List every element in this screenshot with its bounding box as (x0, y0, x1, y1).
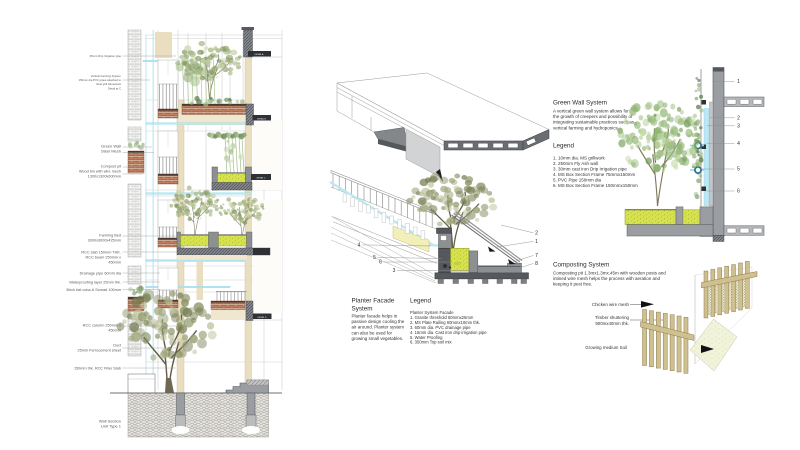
svg-text:45mm Drip Irrigation pipe: 45mm Drip Irrigation pipe (90, 54, 122, 58)
svg-text:7: 7 (535, 253, 538, 259)
svg-text:3. 30mm cast iron Drip Irrigat: 3. 30mm cast iron Drip Irrigation pipe (553, 166, 627, 171)
svg-text:DETAIL A: DETAIL A (255, 53, 265, 56)
svg-text:Waterproofing layer 25mm thk.: Waterproofing layer 25mm thk. (69, 280, 121, 284)
svg-text:Duct: Duct (113, 343, 122, 347)
svg-text:Composting System: Composting System (553, 262, 609, 269)
svg-text:Compost pit: Compost pit (101, 164, 122, 168)
svg-text:Green Wall System: Green Wall System (553, 100, 607, 107)
svg-text:Legend: Legend (410, 298, 432, 305)
svg-text:2: 2 (535, 231, 538, 237)
svg-text:Planter Facade: Planter Facade (352, 298, 395, 305)
svg-text:2. 250mm Fly Ash wall: 2. 250mm Fly Ash wall (553, 161, 598, 166)
svg-text:DETAIL D: DETAIL D (258, 316, 267, 319)
svg-text:the growth of creepers and pos: the growth of creepers and possibility o… (553, 114, 633, 119)
svg-text:Farming Bed: Farming Bed (99, 233, 121, 237)
svg-text:RCC slab 150mm THK.: RCC slab 150mm THK. (81, 250, 121, 254)
svg-text:3: 3 (737, 124, 740, 130)
svg-text:6: 6 (737, 189, 740, 195)
svg-text:Wall Section: Wall Section (99, 418, 121, 423)
svg-text:Growing medium Soil: Growing medium Soil (585, 345, 627, 350)
svg-text:2: 2 (737, 116, 740, 122)
svg-text:450mm: 450mm (108, 261, 121, 265)
svg-text:5: 5 (373, 255, 376, 261)
svg-text:1: 1 (535, 239, 538, 245)
svg-text:A vertical green wall system a: A vertical green wall system allows for (553, 109, 629, 114)
svg-text:keeping it pest free.: keeping it pest free. (553, 282, 592, 287)
svg-text:RCC beam 250mm x: RCC beam 250mm x (86, 255, 122, 259)
svg-text:Legend: Legend (553, 143, 575, 150)
svg-text:Detail at C: Detail at C (108, 86, 121, 90)
svg-text:integrating sustainable practi: integrating sustainable practices such a… (553, 120, 635, 125)
svg-text:can also be used for: can also be used for (352, 330, 393, 335)
svg-text:growing small vegetables.: growing small vegetables. (352, 336, 404, 341)
svg-text:Chicken wire mesh: Chicken wire mesh (592, 302, 630, 307)
svg-text:air around. Planter system: air around. Planter system (352, 325, 405, 330)
svg-text:6: 6 (379, 260, 382, 266)
svg-text:Brick bat coba & Scread 100mm: Brick bat coba & Scread 100mm (67, 288, 121, 292)
svg-text:6. MS Box Section Frame 150mmx: 6. MS Box Section Frame 150mmx150mm (553, 183, 638, 188)
svg-text:6. 350mm Top soil mix: 6. 350mm Top soil mix (410, 340, 452, 345)
svg-text:5: 5 (737, 167, 740, 173)
svg-text:Timber shuttering: Timber shuttering (595, 315, 630, 320)
svg-text:1300x1300x600mm: 1300x1300x600mm (88, 175, 121, 179)
svg-text:System: System (352, 306, 373, 313)
svg-text:DETAIL B: DETAIL B (257, 117, 266, 120)
svg-text:1: 1 (737, 79, 740, 85)
svg-text:vertical farming and hydroponi: vertical farming and hydroponics. (553, 125, 619, 130)
svg-text:1. 10mm dia. MS grillwork: 1. 10mm dia. MS grillwork (553, 156, 606, 161)
svg-text:Planter facade helps in: Planter facade helps in (352, 314, 398, 319)
svg-text:3: 3 (393, 268, 396, 274)
svg-text:Steel Mesh: Steel Mesh (101, 149, 121, 154)
svg-text:900mx40mm thk.: 900mx40mm thk. (595, 321, 629, 326)
svg-text:passive design cooling the: passive design cooling the (352, 319, 405, 324)
svg-text:Wood bin with wire mesh: Wood bin with wire mesh (79, 169, 121, 173)
svg-text:3000x3000x425mm: 3000x3000x425mm (88, 238, 121, 242)
svg-text:Green Wall: Green Wall (101, 143, 121, 148)
svg-text:8: 8 (535, 261, 538, 267)
svg-text:Unit Type 1: Unit Type 1 (101, 424, 122, 429)
svg-text:intined wire mesh helps the pr: intined wire mesh helps the process with… (553, 276, 661, 281)
svg-text:Composting pit 1.3mx1.3mx.45m: Composting pit 1.3mx1.3mx.45m with woode… (553, 271, 666, 276)
svg-text:RCC column 250mm x: RCC column 250mm x (83, 323, 121, 327)
svg-text:5. PVC Pipe 150mm dia: 5. PVC Pipe 150mm dia (553, 177, 602, 182)
svg-text:DETAIL C: DETAIL C (257, 177, 266, 180)
svg-text:4: 4 (358, 243, 361, 249)
svg-text:450mm: 450mm (108, 328, 121, 332)
svg-text:4. MS Box Section Frame 75mmx1: 4. MS Box Section Frame 75mmx150mm (553, 172, 636, 177)
svg-text:150mm thk. RCC Filler Slab: 150mm thk. RCC Filler Slab (74, 366, 121, 370)
svg-text:Drainage pipe 60mm dia: Drainage pipe 60mm dia (80, 271, 122, 275)
svg-text:4: 4 (737, 141, 740, 147)
svg-text:25mm Ferrocement sheet: 25mm Ferrocement sheet (78, 348, 122, 352)
